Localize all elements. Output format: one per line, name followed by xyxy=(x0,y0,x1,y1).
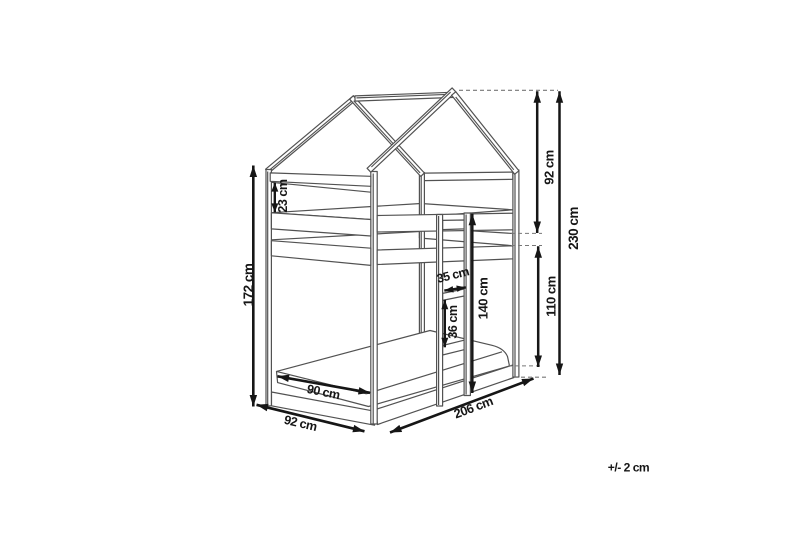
svg-text:92 cm: 92 cm xyxy=(542,150,557,184)
svg-text:172 cm: 172 cm xyxy=(241,263,256,306)
svg-text:+/- 2 cm: +/- 2 cm xyxy=(608,460,649,474)
svg-text:110 cm: 110 cm xyxy=(544,276,559,316)
svg-text:23 cm: 23 cm xyxy=(276,179,290,213)
svg-text:36 cm: 36 cm xyxy=(446,305,460,339)
svg-text:230 cm: 230 cm xyxy=(566,207,581,250)
svg-text:140 cm: 140 cm xyxy=(476,278,491,320)
